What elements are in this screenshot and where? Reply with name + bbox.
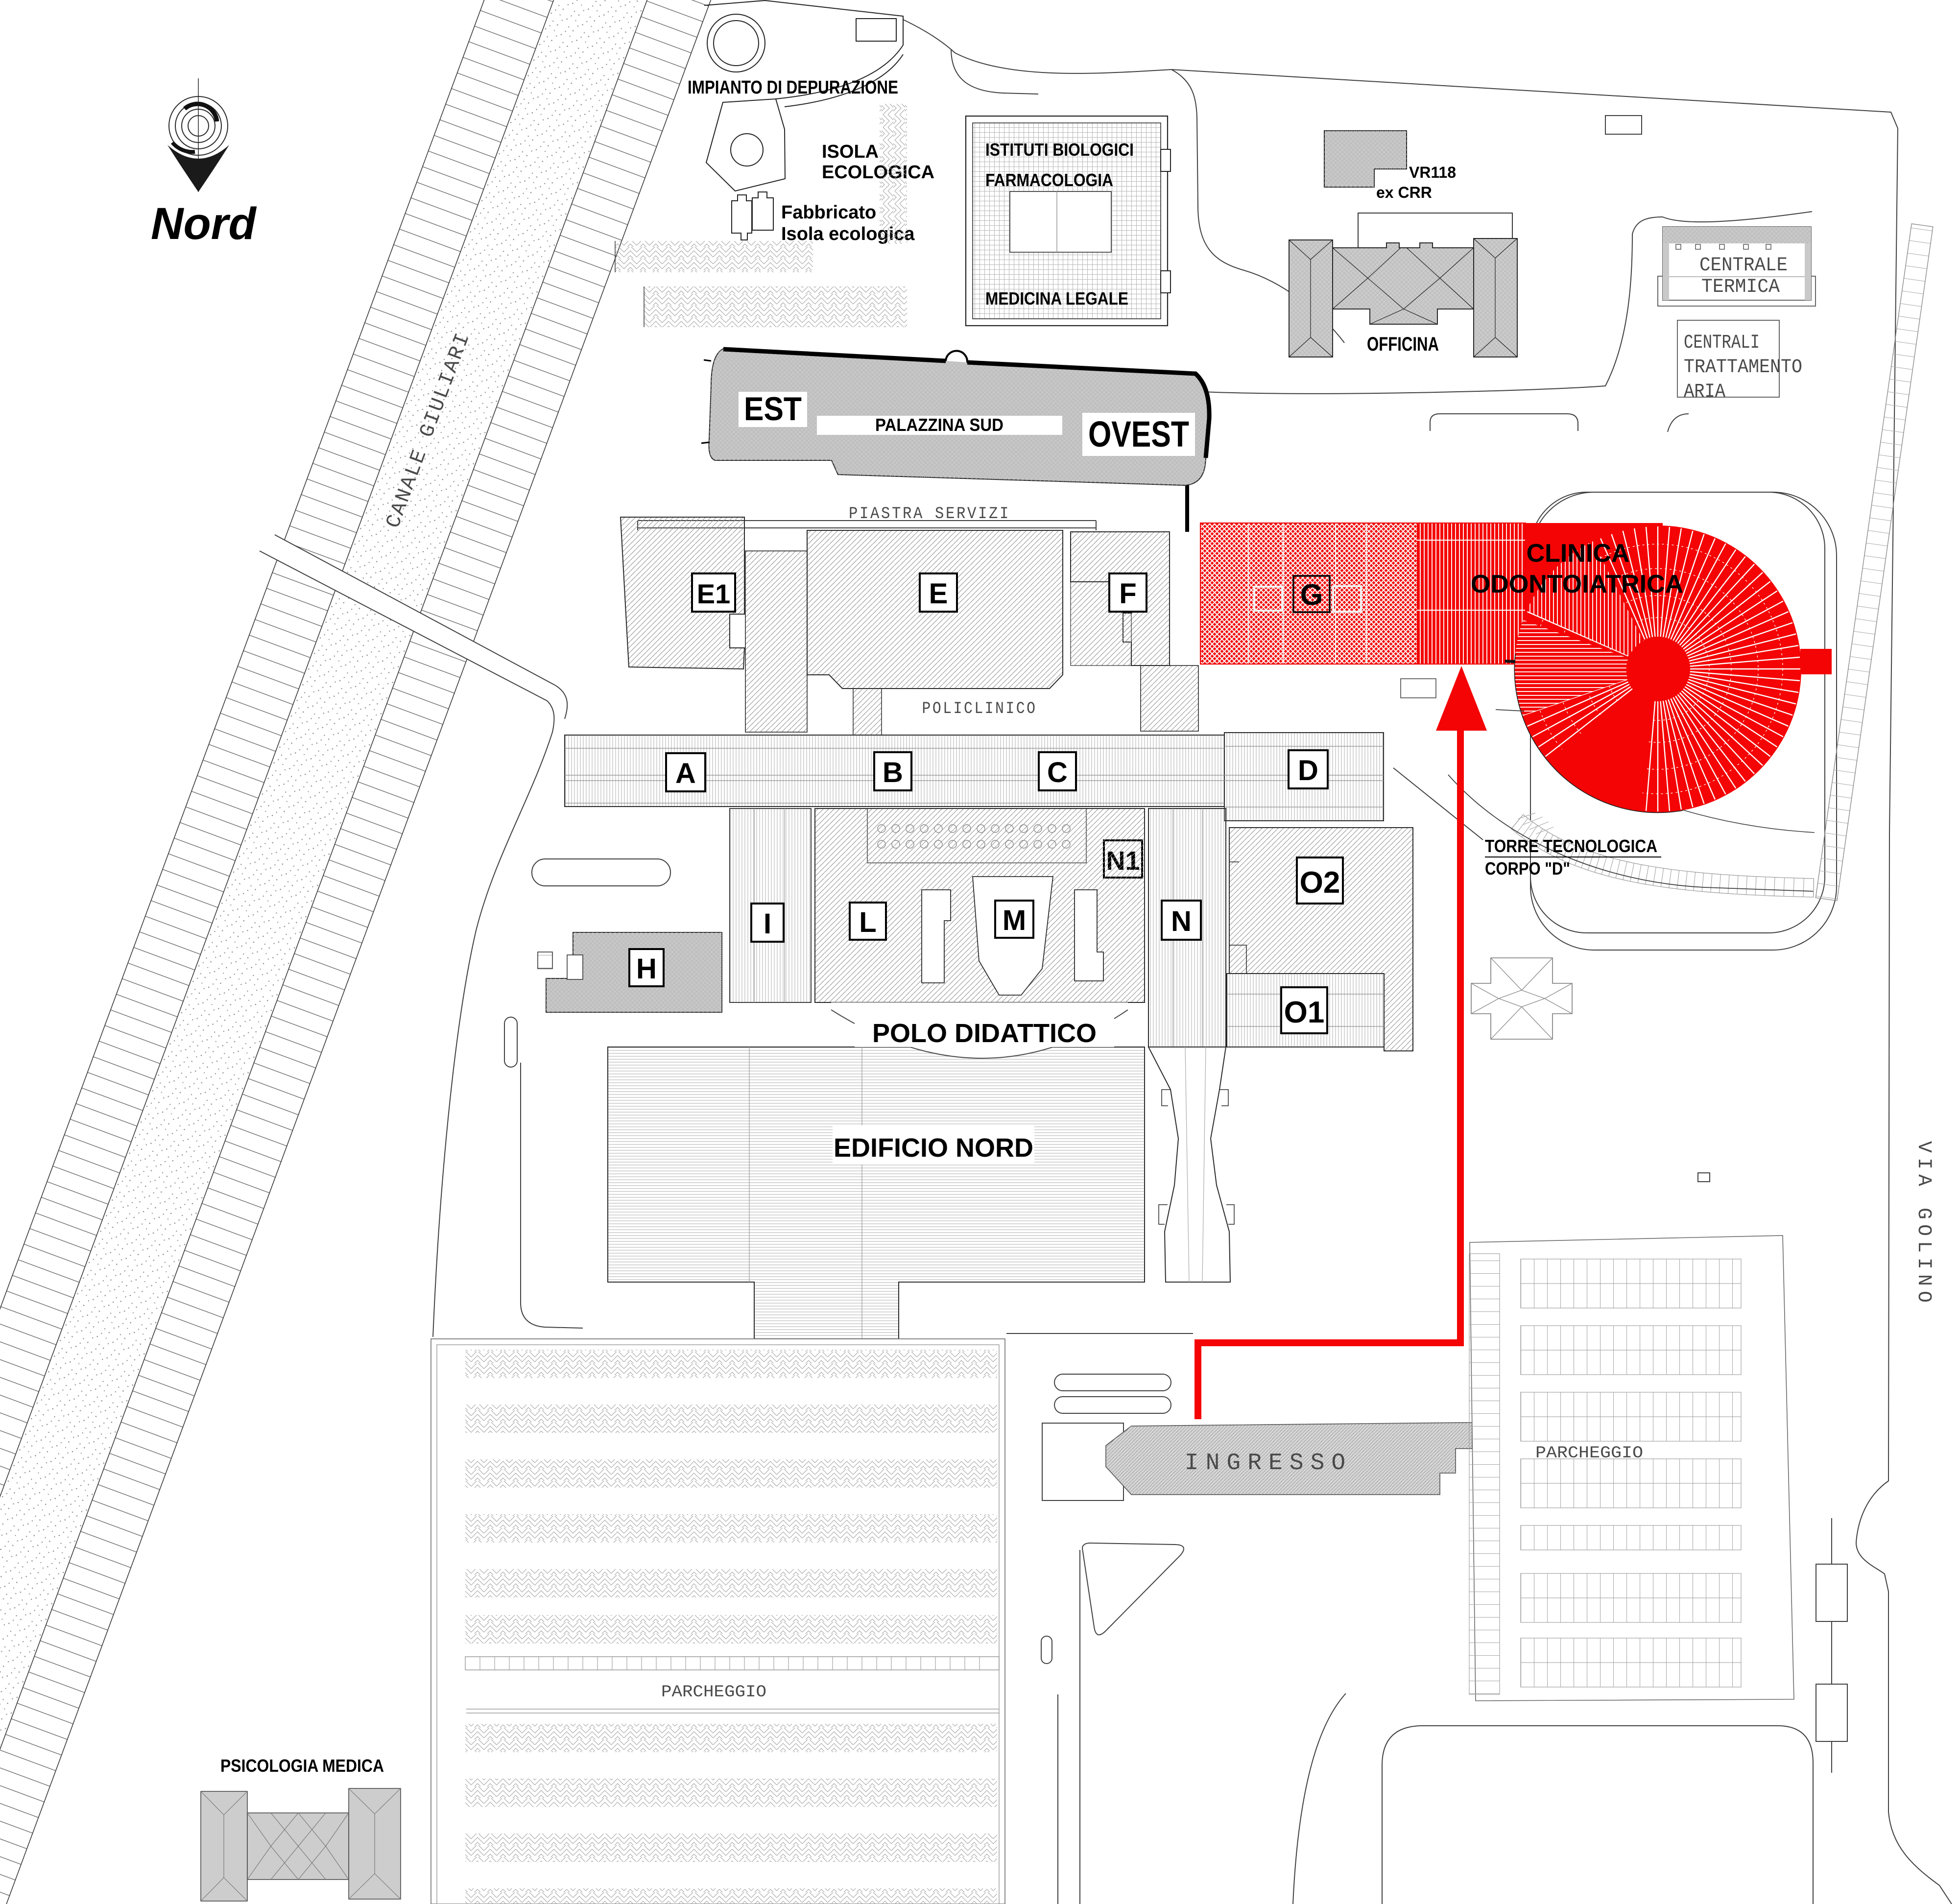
- svg-text:PSICOLOGIA MEDICA: PSICOLOGIA MEDICA: [220, 1756, 384, 1776]
- svg-text:ODONTOIATRICA: ODONTOIATRICA: [1471, 570, 1683, 598]
- svg-text:L: L: [859, 906, 876, 938]
- svg-text:CORPO "D": CORPO "D": [1485, 858, 1570, 879]
- svg-text:IMPIANTO DI DEPURAZIONE: IMPIANTO DI DEPURAZIONE: [688, 77, 898, 98]
- svg-text:OFFICINA: OFFICINA: [1367, 333, 1439, 355]
- svg-text:ISTITUTI BIOLOGICI: ISTITUTI BIOLOGICI: [985, 140, 1134, 160]
- svg-text:E: E: [929, 578, 948, 610]
- svg-text:Nord: Nord: [151, 199, 257, 249]
- svg-text:I: I: [764, 908, 771, 940]
- svg-text:E1: E1: [697, 578, 731, 609]
- svg-text:F: F: [1119, 578, 1136, 610]
- svg-text:PALAZZINA SUD: PALAZZINA SUD: [875, 415, 1003, 435]
- svg-text:PARCHEGGIO: PARCHEGGIO: [661, 1683, 766, 1702]
- svg-text:ECOLOGICA: ECOLOGICA: [822, 162, 934, 183]
- svg-text:Fabbricato: Fabbricato: [781, 202, 876, 223]
- svg-text:TRATTAMENTO: TRATTAMENTO: [1684, 357, 1802, 379]
- svg-text:G: G: [1300, 578, 1323, 611]
- svg-text:POLICLINICO: POLICLINICO: [922, 700, 1037, 718]
- svg-text:O1: O1: [1284, 996, 1325, 1029]
- svg-text:ISOLA: ISOLA: [822, 142, 879, 162]
- svg-text:TERMICA: TERMICA: [1701, 276, 1780, 298]
- svg-text:M: M: [1003, 904, 1026, 936]
- svg-text:B: B: [883, 757, 903, 788]
- svg-text:CENTRALI: CENTRALI: [1684, 332, 1760, 354]
- svg-text:D: D: [1298, 755, 1318, 786]
- svg-text:POLO DIDATTICO: POLO DIDATTICO: [872, 1019, 1097, 1048]
- svg-text:PARCHEGGIO: PARCHEGGIO: [1535, 1444, 1643, 1463]
- svg-text:EST: EST: [744, 390, 802, 428]
- svg-text:CLINICA: CLINICA: [1527, 539, 1630, 568]
- svg-text:CENTRALE: CENTRALE: [1699, 255, 1788, 277]
- svg-text:TORRE TECNOLOGICA: TORRE TECNOLOGICA: [1485, 836, 1657, 856]
- svg-text:A: A: [675, 758, 696, 789]
- svg-text:OVEST: OVEST: [1088, 414, 1189, 454]
- svg-text:PIASTRA SERVIZI: PIASTRA SERVIZI: [849, 505, 1010, 524]
- svg-text:INGRESSO: INGRESSO: [1185, 1450, 1352, 1476]
- svg-text:ex CRR: ex CRR: [1376, 184, 1432, 201]
- svg-text:MEDICINA LEGALE: MEDICINA LEGALE: [985, 288, 1128, 309]
- svg-text:VR118: VR118: [1409, 164, 1456, 181]
- svg-text:EDIFICIO NORD: EDIFICIO NORD: [834, 1133, 1033, 1163]
- svg-text:VIA GOLINO: VIA GOLINO: [1912, 1141, 1935, 1308]
- svg-text:O2: O2: [1300, 866, 1340, 900]
- svg-text:FARMACOLOGIA: FARMACOLOGIA: [985, 170, 1113, 190]
- svg-text:N: N: [1171, 905, 1192, 937]
- svg-text:C: C: [1047, 757, 1068, 788]
- svg-text:H: H: [636, 953, 657, 985]
- svg-text:ARIA: ARIA: [1684, 381, 1725, 403]
